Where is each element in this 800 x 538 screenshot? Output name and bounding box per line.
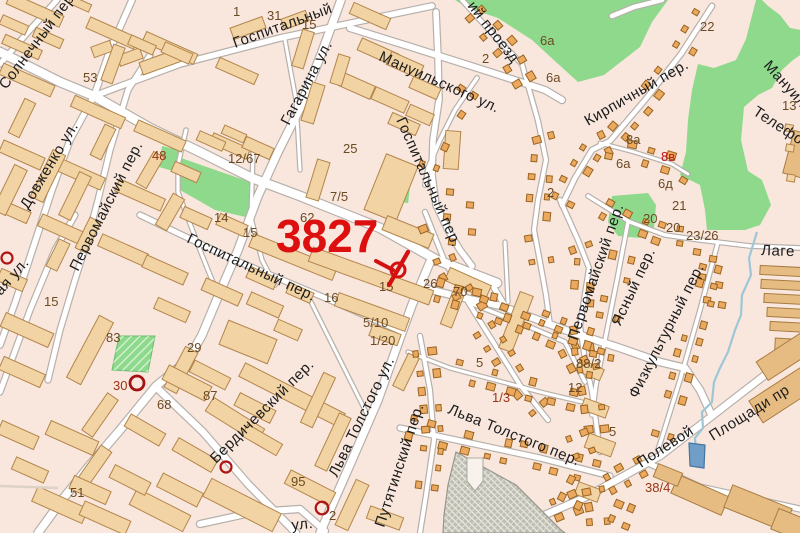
svg-text:31: 31: [267, 8, 281, 23]
svg-text:22: 22: [700, 19, 714, 34]
svg-text:48: 48: [152, 148, 166, 163]
svg-text:87: 87: [203, 388, 217, 403]
svg-text:95: 95: [291, 474, 305, 489]
svg-text:53: 53: [83, 70, 97, 85]
svg-text:6а: 6а: [616, 156, 631, 171]
svg-text:51: 51: [70, 485, 84, 500]
svg-text:8в: 8в: [661, 149, 675, 164]
svg-text:15: 15: [243, 225, 257, 240]
svg-text:20: 20: [643, 211, 657, 226]
svg-text:2: 2: [482, 51, 489, 66]
svg-text:38/4: 38/4: [645, 480, 670, 495]
svg-text:1/3: 1/3: [492, 390, 510, 405]
svg-text:14: 14: [214, 210, 228, 225]
svg-text:2: 2: [329, 508, 336, 523]
svg-text:70: 70: [453, 284, 467, 299]
svg-text:20: 20: [666, 220, 680, 235]
svg-text:26: 26: [423, 276, 437, 291]
svg-text:3827: 3827: [276, 210, 378, 262]
svg-text:13: 13: [782, 98, 796, 113]
svg-text:2: 2: [547, 185, 554, 200]
svg-text:7/5: 7/5: [330, 189, 348, 204]
svg-text:21: 21: [672, 198, 686, 213]
svg-text:1: 1: [233, 4, 240, 19]
svg-text:1/20: 1/20: [370, 333, 395, 348]
svg-text:ул.: ул.: [291, 515, 314, 533]
svg-text:8а: 8а: [626, 132, 641, 147]
svg-text:83: 83: [106, 330, 120, 345]
svg-text:6а: 6а: [540, 33, 555, 48]
svg-text:5: 5: [609, 424, 616, 439]
svg-text:6д: 6д: [658, 176, 673, 191]
svg-text:15: 15: [302, 17, 316, 32]
svg-text:25: 25: [343, 141, 357, 156]
svg-text:Лаге: Лаге: [761, 242, 795, 260]
svg-text:30: 30: [113, 378, 127, 393]
svg-text:16: 16: [324, 290, 338, 305]
svg-text:6а: 6а: [546, 70, 561, 85]
svg-text:29: 29: [187, 340, 201, 355]
svg-text:68: 68: [157, 397, 171, 412]
svg-text:5/10: 5/10: [363, 315, 388, 330]
svg-text:5: 5: [476, 355, 483, 370]
svg-text:12/67: 12/67: [228, 151, 261, 166]
svg-text:12: 12: [568, 380, 582, 395]
svg-text:88/2: 88/2: [576, 356, 601, 371]
svg-text:23/26: 23/26: [686, 228, 719, 243]
svg-text:15: 15: [44, 294, 58, 309]
